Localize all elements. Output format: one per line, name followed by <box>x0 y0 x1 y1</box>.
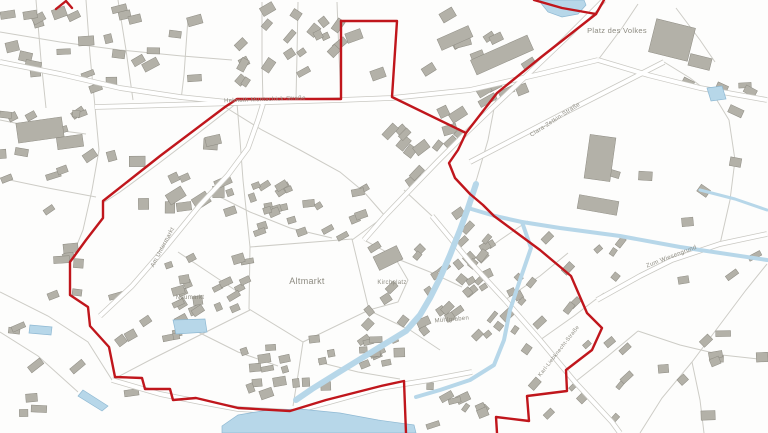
building <box>253 227 266 236</box>
label-zum-wiesengrund: Zum Wiesengrund <box>646 245 698 270</box>
building <box>681 217 693 227</box>
building <box>729 157 742 168</box>
building <box>380 293 393 305</box>
building <box>186 253 197 263</box>
building <box>287 216 297 224</box>
building <box>394 348 405 357</box>
building <box>283 29 296 43</box>
building <box>279 354 291 363</box>
building <box>678 276 690 285</box>
building <box>756 352 768 362</box>
building <box>67 10 81 21</box>
building <box>521 343 532 355</box>
building <box>354 209 368 220</box>
building <box>321 224 334 234</box>
building <box>381 359 391 366</box>
water-body <box>78 390 108 411</box>
building <box>716 331 731 337</box>
building <box>179 274 190 284</box>
building <box>619 343 632 355</box>
building <box>56 165 68 175</box>
building <box>437 105 450 118</box>
major-road-fills <box>0 0 767 433</box>
building <box>318 16 330 28</box>
building <box>47 290 59 300</box>
building <box>31 405 47 413</box>
building <box>725 269 739 281</box>
building <box>638 171 652 181</box>
building <box>421 62 436 76</box>
building <box>728 105 745 118</box>
building <box>234 38 247 51</box>
building <box>73 258 83 268</box>
building <box>511 325 520 334</box>
building <box>471 329 483 341</box>
building <box>701 411 715 421</box>
building <box>168 172 180 184</box>
building <box>327 349 335 357</box>
building <box>448 106 467 123</box>
building <box>226 188 234 196</box>
building <box>345 29 363 44</box>
building <box>43 205 55 216</box>
building <box>57 49 71 55</box>
building <box>382 123 399 140</box>
label-muehlgraben: Mühlgraben <box>434 316 469 325</box>
building <box>214 302 223 311</box>
minor-road <box>0 178 96 197</box>
building <box>104 34 113 44</box>
building <box>261 19 273 31</box>
road <box>95 60 598 107</box>
building <box>227 290 241 301</box>
building <box>51 6 67 20</box>
building <box>169 30 182 38</box>
water-body <box>173 319 207 334</box>
building <box>456 273 468 285</box>
building <box>453 259 464 270</box>
minor-road <box>0 292 112 380</box>
building <box>427 383 434 390</box>
label-karl-liebknecht-strasse: Karl-Liebknecht-Straße <box>537 325 581 378</box>
building <box>261 57 276 73</box>
building <box>528 377 541 391</box>
building <box>138 198 148 209</box>
building <box>82 148 98 163</box>
building <box>248 193 256 203</box>
label-altmarkt: Altmarkt <box>289 276 325 286</box>
minor-road <box>640 264 767 433</box>
building <box>53 256 69 264</box>
building <box>541 231 554 244</box>
building <box>461 403 469 412</box>
building <box>72 289 82 296</box>
minor-road <box>715 97 735 244</box>
building <box>292 378 299 387</box>
stream <box>468 208 522 222</box>
minor-road <box>262 2 263 103</box>
building <box>609 247 617 256</box>
city-map: Helmuth-Muntschick-StraßePlatz des Volke… <box>0 0 768 433</box>
map-screenshot: Helmuth-Muntschick-StraßePlatz des Volke… <box>0 0 768 433</box>
building <box>106 150 117 162</box>
building <box>309 335 320 343</box>
building <box>476 249 489 263</box>
building <box>187 74 201 82</box>
building <box>699 334 712 347</box>
building <box>258 353 271 363</box>
building <box>577 195 619 216</box>
label-neumarkt: Neumarkt <box>176 295 204 301</box>
building <box>493 321 503 331</box>
building <box>283 48 295 60</box>
label-clara-zetkin-strasse: Clara-Zetkin-Straße <box>529 102 582 139</box>
building <box>186 14 203 27</box>
building <box>296 66 310 77</box>
building <box>281 365 289 373</box>
building <box>72 110 80 117</box>
building <box>5 40 20 53</box>
building <box>370 67 387 81</box>
building <box>176 201 192 211</box>
building <box>487 311 498 323</box>
building <box>0 10 16 20</box>
label-platz-des-volkes: Platz des Volkes <box>587 26 647 35</box>
building <box>439 7 457 23</box>
building <box>594 245 603 254</box>
road-casing <box>112 372 472 412</box>
stream <box>700 190 767 210</box>
building <box>677 374 689 386</box>
building <box>219 277 233 288</box>
building <box>129 156 145 166</box>
building <box>302 199 314 207</box>
building <box>351 188 364 197</box>
building <box>611 272 621 282</box>
building <box>70 359 86 374</box>
building <box>0 149 6 158</box>
building <box>27 358 43 373</box>
building <box>620 371 634 384</box>
water-body <box>29 325 52 335</box>
building <box>0 111 12 119</box>
building <box>230 303 241 312</box>
building <box>179 173 190 183</box>
building <box>688 54 712 71</box>
building <box>265 344 275 351</box>
building <box>658 364 669 373</box>
building <box>19 409 28 416</box>
building <box>466 276 476 285</box>
minor-road <box>249 239 369 342</box>
road <box>112 372 472 412</box>
building <box>25 393 37 402</box>
building <box>15 147 29 156</box>
building <box>147 48 160 54</box>
building <box>364 305 375 316</box>
building <box>533 316 547 330</box>
building <box>164 261 173 269</box>
building <box>297 48 307 57</box>
building <box>25 111 37 122</box>
building <box>302 378 310 387</box>
building <box>112 49 125 59</box>
building <box>543 408 554 419</box>
building <box>272 376 286 387</box>
building <box>162 334 174 342</box>
building <box>205 134 222 147</box>
building <box>261 365 274 372</box>
building <box>314 202 323 210</box>
building <box>361 318 374 331</box>
building <box>483 330 492 339</box>
minor-road <box>237 103 250 247</box>
label-kirchplatz: Kirchplatz <box>377 280 406 286</box>
water-body <box>222 409 416 433</box>
building <box>296 227 307 237</box>
building <box>479 283 488 291</box>
label-am-untermarkt: Am Untermarkt <box>150 227 176 269</box>
minor-road <box>225 107 385 216</box>
building <box>0 174 13 184</box>
building <box>259 387 274 400</box>
building <box>139 315 152 327</box>
building <box>604 336 616 348</box>
minor-road <box>692 362 704 433</box>
minor-road <box>181 18 188 100</box>
building <box>526 277 537 288</box>
building <box>290 9 302 21</box>
building <box>318 357 327 365</box>
building <box>432 140 443 152</box>
building <box>370 336 383 342</box>
building <box>426 421 440 430</box>
building <box>249 363 261 372</box>
building <box>582 340 591 349</box>
building <box>78 36 94 46</box>
building <box>413 139 431 156</box>
building <box>223 206 237 217</box>
building <box>240 347 249 356</box>
